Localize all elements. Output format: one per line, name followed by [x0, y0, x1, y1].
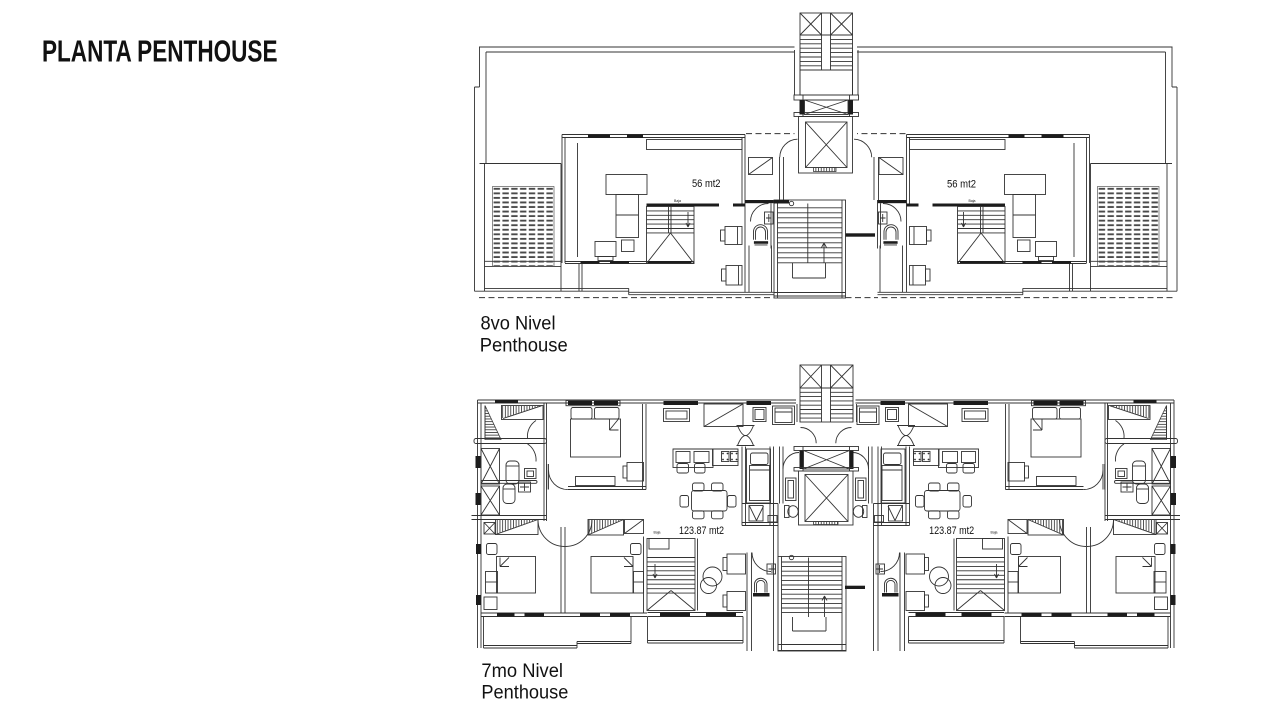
svg-text:123.87 mt2: 123.87 mt2 — [679, 525, 724, 537]
svg-text:Baja: Baja — [991, 531, 998, 535]
svg-text:Baja: Baja — [654, 531, 661, 535]
svg-text:56 mt2: 56 mt2 — [692, 178, 721, 190]
svg-text:PLANTA PENTHOUSE: PLANTA PENTHOUSE — [42, 35, 278, 68]
svg-text:Penthouse: Penthouse — [481, 681, 568, 703]
svg-text:7mo Nivel: 7mo Nivel — [481, 660, 563, 682]
svg-text:Baja: Baja — [674, 199, 681, 203]
svg-text:123.87 mt2: 123.87 mt2 — [929, 525, 974, 537]
svg-text:56 mt2: 56 mt2 — [947, 178, 976, 190]
svg-text:8vo Nivel: 8vo Nivel — [481, 313, 556, 335]
svg-text:Penthouse: Penthouse — [480, 335, 568, 357]
svg-text:Baja: Baja — [969, 199, 976, 203]
